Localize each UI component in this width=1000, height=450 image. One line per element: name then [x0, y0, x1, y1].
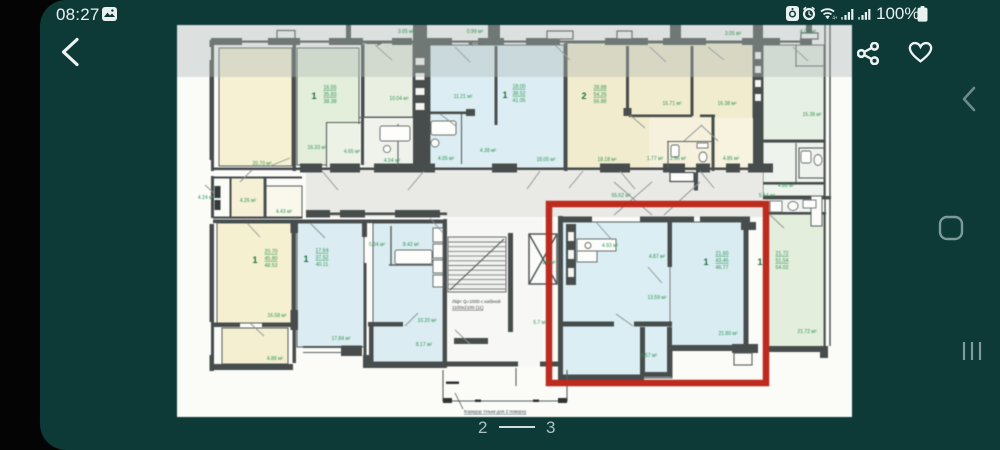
svg-text:41.05: 41.05	[513, 98, 526, 104]
svg-text:10.20 м²: 10.20 м²	[417, 318, 436, 324]
svg-text:4.85 м²: 4.85 м²	[723, 156, 740, 162]
svg-text:4.43 м²: 4.43 м²	[276, 209, 293, 215]
svg-text:2.96 м²: 2.96 м²	[670, 156, 687, 162]
svg-text:18.05 м²: 18.05 м²	[536, 157, 555, 163]
svg-text:4.05 м²: 4.05 м²	[438, 156, 455, 162]
svg-text:18.00: 18.00	[513, 84, 526, 90]
svg-text:21.72 м²: 21.72 м²	[797, 329, 816, 335]
svg-text:21.72: 21.72	[776, 251, 789, 257]
svg-text:1: 1	[311, 91, 316, 101]
svg-text:2: 2	[581, 91, 586, 101]
svg-text:56.88: 56.88	[594, 99, 607, 105]
svg-text:11.21 м²: 11.21 м²	[454, 94, 473, 100]
svg-text:4.24 м²: 4.24 м²	[198, 195, 215, 201]
svg-text:17.64: 17.64	[316, 248, 329, 254]
svg-text:3.05 м²: 3.05 м²	[725, 31, 742, 37]
svg-text:35.83: 35.83	[324, 92, 337, 98]
svg-text:37.52: 37.52	[316, 255, 329, 261]
svg-text:2.6 м²: 2.6 м²	[542, 260, 556, 266]
svg-text:Ліфт Q=1000 с кабіной: Ліфт Q=1000 с кабіной	[452, 298, 501, 304]
svg-text:40.11: 40.11	[316, 262, 329, 268]
svg-text:4.26 м²: 4.26 м²	[240, 198, 257, 204]
svg-text:43.46: 43.46	[716, 258, 729, 264]
svg-text:8.42 м²: 8.42 м²	[403, 242, 420, 248]
svg-text:1: 1	[303, 254, 308, 264]
svg-text:20.70: 20.70	[265, 249, 278, 255]
svg-text:16.55: 16.55	[324, 85, 337, 91]
svg-text:55.62 м²: 55.62 м²	[611, 193, 630, 199]
svg-text:13.59 м²: 13.59 м²	[647, 295, 666, 301]
svg-text:54.02: 54.02	[776, 265, 789, 271]
svg-text:0.99 м²: 0.99 м²	[467, 29, 484, 35]
svg-text:20.70 м²: 20.70 м²	[252, 161, 271, 167]
svg-text:16.38 м²: 16.38 м²	[717, 101, 736, 107]
svg-text:4.87 м²: 4.87 м²	[649, 254, 666, 260]
svg-text:4.93 м²: 4.93 м²	[602, 243, 619, 249]
svg-text:4.88 м²: 4.88 м²	[778, 183, 795, 189]
svg-text:4.04 м²: 4.04 м²	[384, 158, 401, 164]
svg-text:4.38 м²: 4.38 м²	[480, 148, 497, 154]
svg-text:4+: 4+	[832, 15, 837, 20]
svg-text:1100х2100 (11): 1100х2100 (11)	[452, 305, 484, 310]
svg-text:38.52: 38.52	[513, 91, 526, 97]
svg-text:4.88 м²: 4.88 м²	[267, 356, 284, 362]
svg-text:5.54 м²: 5.54 м²	[759, 193, 776, 199]
svg-text:28.88: 28.88	[594, 85, 607, 91]
svg-text:8.57 м²: 8.57 м²	[641, 353, 658, 359]
svg-text:1.77 м²: 1.77 м²	[647, 156, 664, 162]
svg-text:3.05 м²: 3.05 м²	[398, 29, 415, 35]
svg-text:8.17 м²: 8.17 м²	[416, 342, 433, 348]
svg-text:54.26: 54.26	[594, 92, 607, 98]
svg-text:21.80 м²: 21.80 м²	[718, 331, 737, 337]
svg-text:16.58 м²: 16.58 м²	[267, 313, 286, 319]
svg-text:1: 1	[703, 257, 708, 267]
svg-text:16.33 м²: 16.33 м²	[307, 145, 326, 151]
svg-text:45.80: 45.80	[265, 256, 278, 262]
svg-text:5.34 м²: 5.34 м²	[369, 242, 386, 248]
svg-text:1: 1	[502, 90, 507, 100]
svg-text:46.77: 46.77	[716, 265, 729, 271]
svg-text:5.7 м²: 5.7 м²	[533, 320, 547, 326]
svg-text:48.53: 48.53	[265, 263, 278, 269]
svg-text:17.84 м²: 17.84 м²	[331, 336, 350, 342]
svg-text:10.04 м²: 10.04 м²	[389, 96, 408, 102]
svg-text:15.71 м²: 15.71 м²	[662, 101, 681, 107]
svg-text:18.18 м²: 18.18 м²	[597, 157, 616, 163]
svg-text:Коридор тільки для 2 поверху: Коридор тільки для 2 поверху	[464, 409, 527, 414]
svg-text:21.60: 21.60	[716, 251, 729, 257]
svg-text:4.06 м²: 4.06 м²	[800, 29, 817, 35]
svg-text:38.38: 38.38	[324, 99, 337, 105]
svg-text:4.65 м²: 4.65 м²	[344, 149, 361, 155]
svg-text:51.54: 51.54	[776, 258, 789, 264]
svg-text:1: 1	[252, 255, 257, 265]
svg-text:15.38 м²: 15.38 м²	[802, 112, 821, 118]
svg-text:1: 1	[757, 257, 762, 267]
